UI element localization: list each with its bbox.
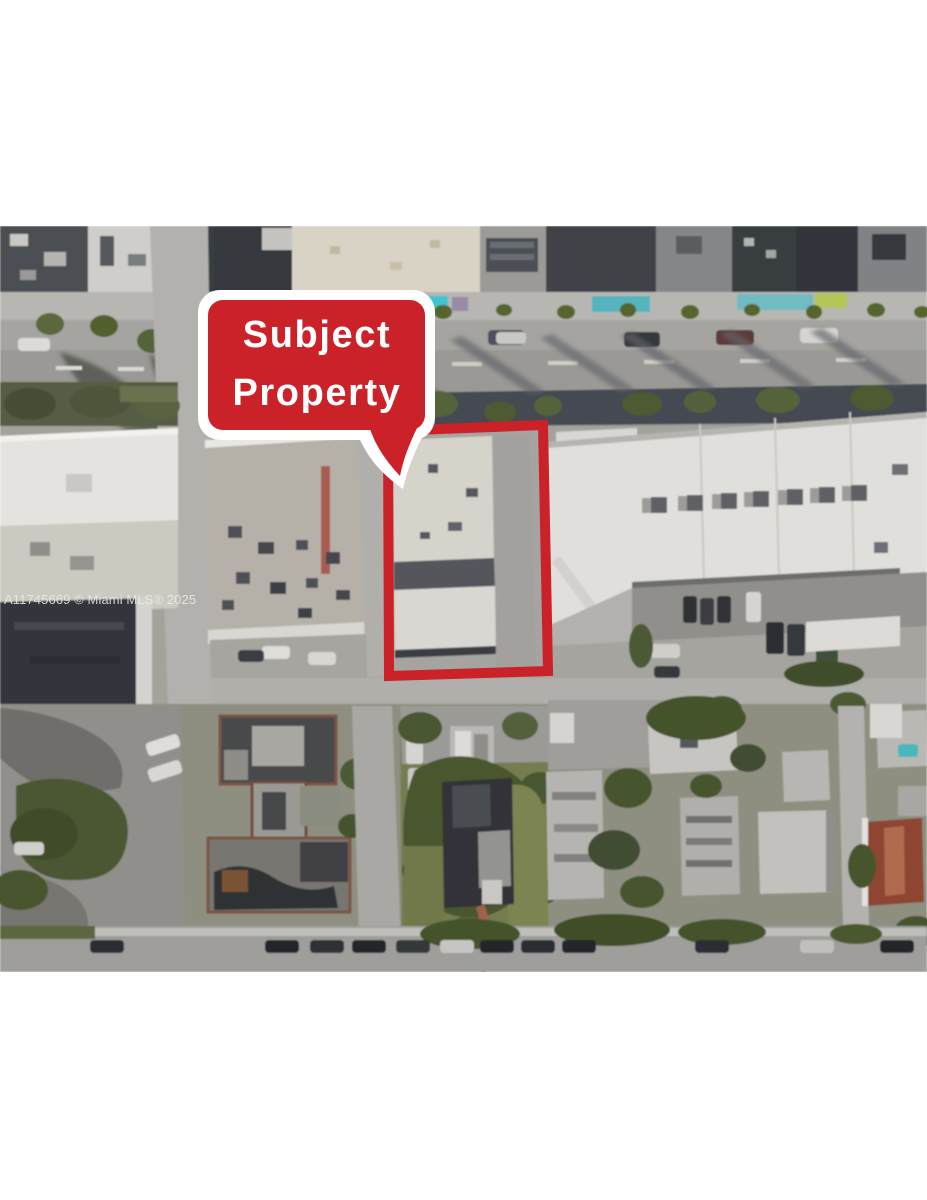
svg-text:Property: Property: [232, 372, 401, 414]
svg-text:Subject: Subject: [243, 314, 391, 356]
